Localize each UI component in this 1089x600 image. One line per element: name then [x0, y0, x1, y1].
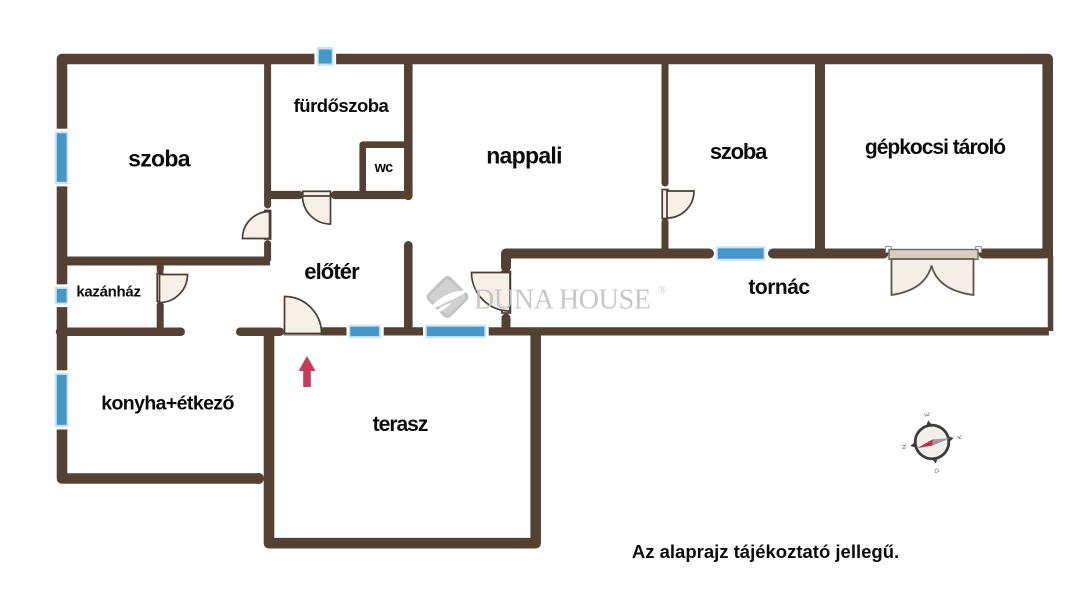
svg-text:N: N: [901, 444, 909, 450]
svg-text:®: ®: [658, 284, 666, 296]
svg-text:D: D: [933, 467, 941, 474]
svg-text:K: K: [956, 433, 964, 440]
svg-text:DUNA HOUSE: DUNA HOUSE: [474, 285, 651, 316]
svg-text:É: É: [924, 411, 932, 417]
